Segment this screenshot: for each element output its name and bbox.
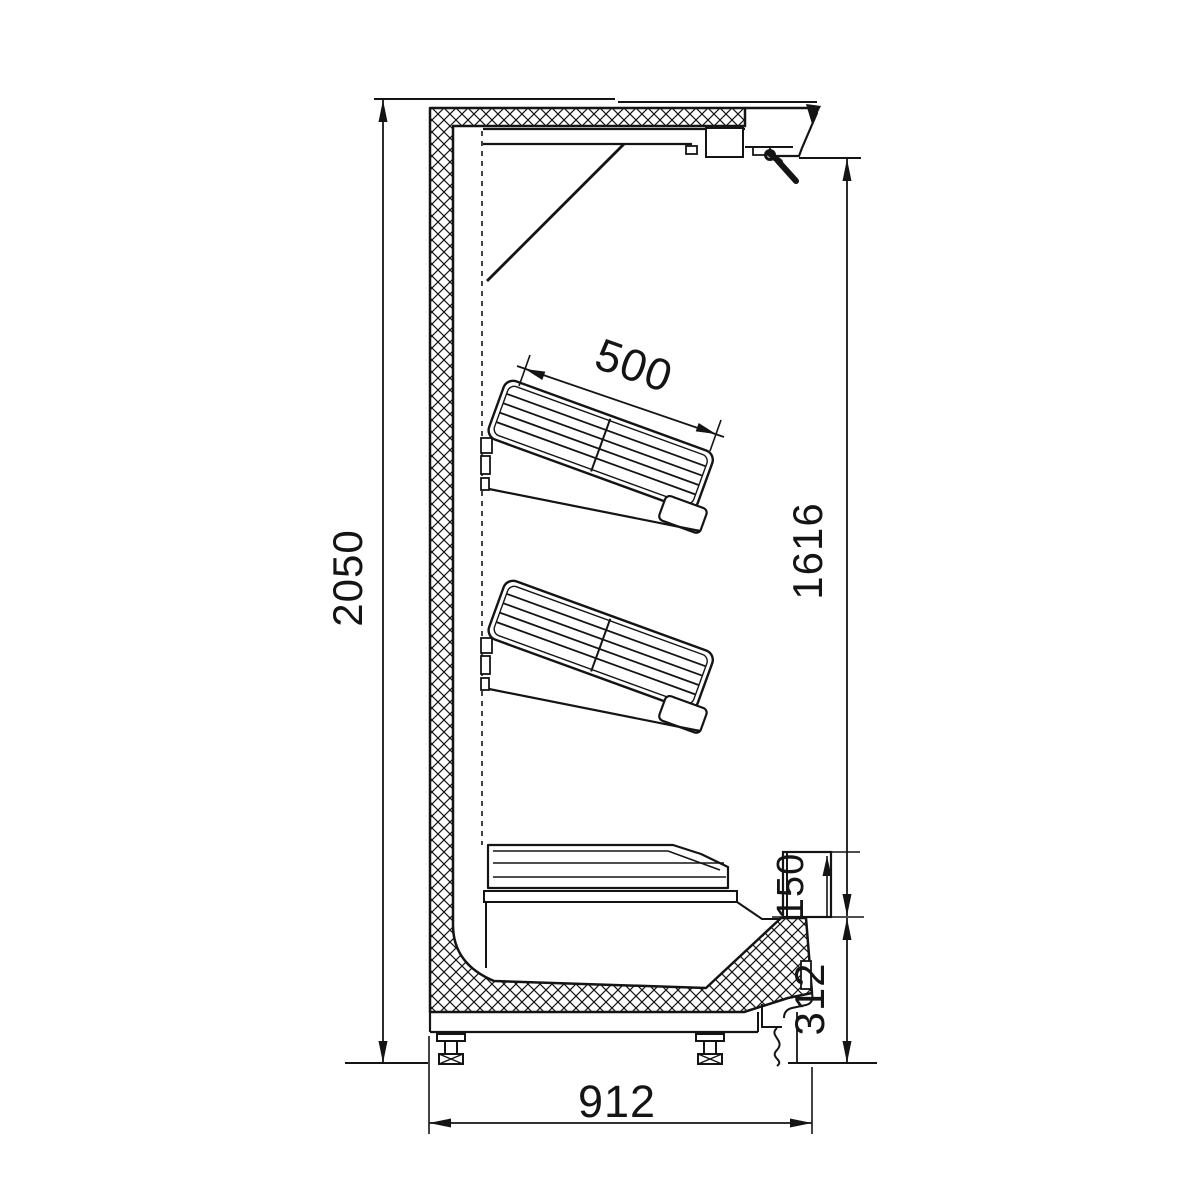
bracket-segment [481,456,490,474]
arrow-right [790,1119,812,1128]
dimension-overall-depth: 912 [429,1036,812,1134]
foot-right [696,1034,724,1064]
bracket-segment [481,438,492,453]
shelf-2-wall-bracket [481,638,492,690]
foot-plate [437,1034,465,1041]
ceiling-hook-bracket [686,146,697,154]
foot-left [437,1034,465,1064]
dimension-overall-height: 2050 [324,99,817,1063]
break-squiggle [774,1028,779,1066]
foot-stem [445,1041,457,1054]
clip-handle [778,161,796,181]
arrow-up [379,100,388,122]
bracket-segment [481,638,492,653]
dimension-label-overall-height: 2050 [324,529,371,626]
dimension-label-sill-height: 150 [770,853,812,919]
arrow-up [843,918,852,940]
arrow-up [843,159,852,181]
dimension-label-shelf-depth: 500 [589,328,680,402]
dimension-label-overall-depth: 912 [578,1076,656,1127]
interior-ceiling [483,128,770,157]
arrow-down [843,1041,852,1063]
bracket-segment [481,678,489,690]
arrow-front [696,423,716,434]
dimension-label-base-height: 312 [786,962,833,1035]
arrow-down [843,894,852,916]
shelf-1-wall-bracket [481,438,492,490]
foot-plate [696,1034,724,1041]
bracket-segment [481,478,489,490]
canopy [745,104,821,181]
dimension-label-opening-height: 1616 [784,502,831,599]
ballast-box [706,128,743,157]
front-corner-bracket [762,1004,782,1027]
bracket-segment [481,656,490,674]
air-duct-diagonal [487,144,624,281]
arrow-down [379,1041,388,1063]
base-deck [484,845,781,968]
top-edge-arrow [806,104,821,124]
deck-base-plate [484,891,737,902]
arrow-left [429,1119,451,1128]
arrow-back [525,369,545,380]
dimension-opening-height: 1616 [772,158,864,917]
plinth [430,1012,758,1032]
technical-drawing-side-section: 2050 500 1616 150 312 [0,0,1200,1200]
drawing-canvas: 2050 500 1616 150 312 [0,0,1200,1200]
foot-stem [704,1041,716,1054]
